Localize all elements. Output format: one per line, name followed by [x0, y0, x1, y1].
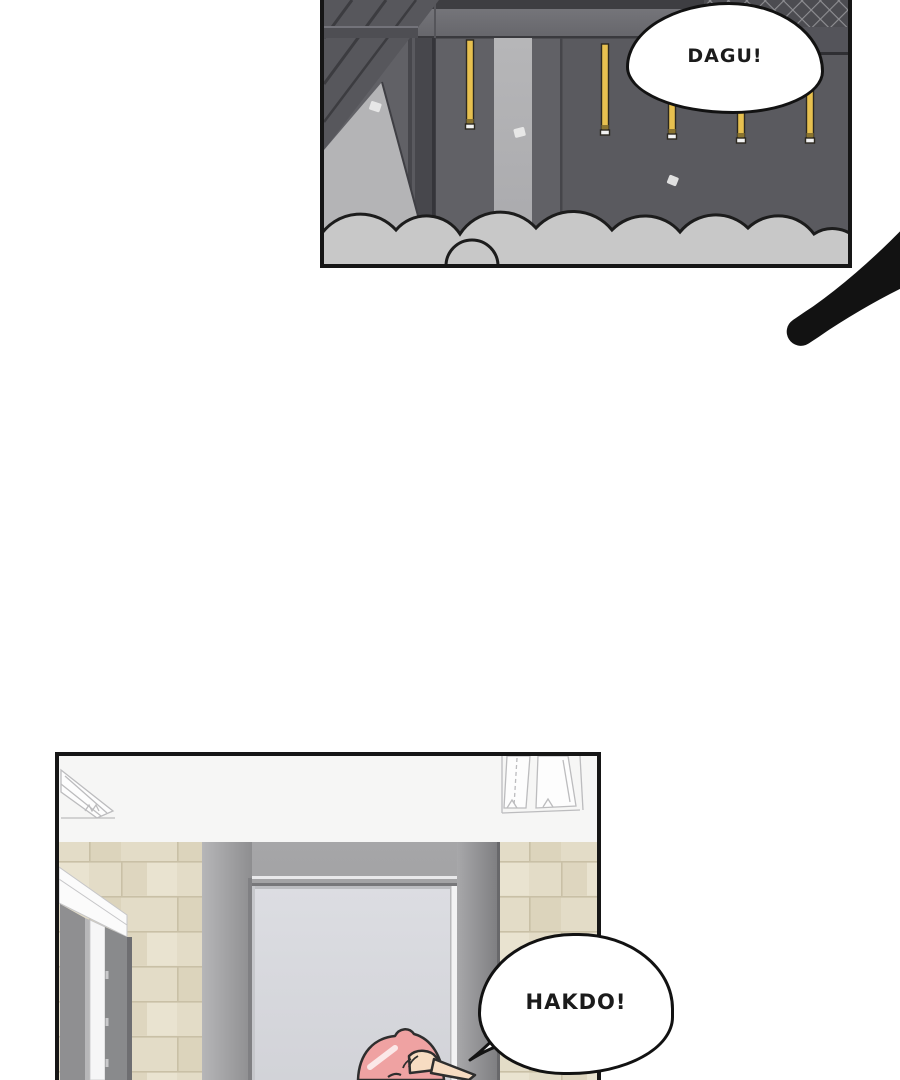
pole: [601, 44, 610, 135]
speech-text-dagu: DAGU!: [687, 45, 762, 67]
doorway: [202, 842, 500, 1080]
white-door-jamb: [90, 920, 105, 1080]
comic-page: { "page": { "type": "webtoon-comic-page"…: [0, 0, 900, 1080]
right-door-panel: [105, 927, 127, 1080]
dagu-bubble-tail: [652, 96, 900, 360]
wall-seam: [560, 38, 563, 226]
light-wall-strip: [494, 38, 532, 228]
door-frame-left: [202, 842, 252, 1080]
rooftop-panel: DAGU!: [320, 0, 852, 268]
speech-bubble-hakdo: HAKDO!: [478, 933, 674, 1075]
pole: [466, 40, 475, 129]
speech-text-hakdo: HAKDO!: [526, 990, 627, 1014]
left-door-panel: [60, 904, 85, 1080]
